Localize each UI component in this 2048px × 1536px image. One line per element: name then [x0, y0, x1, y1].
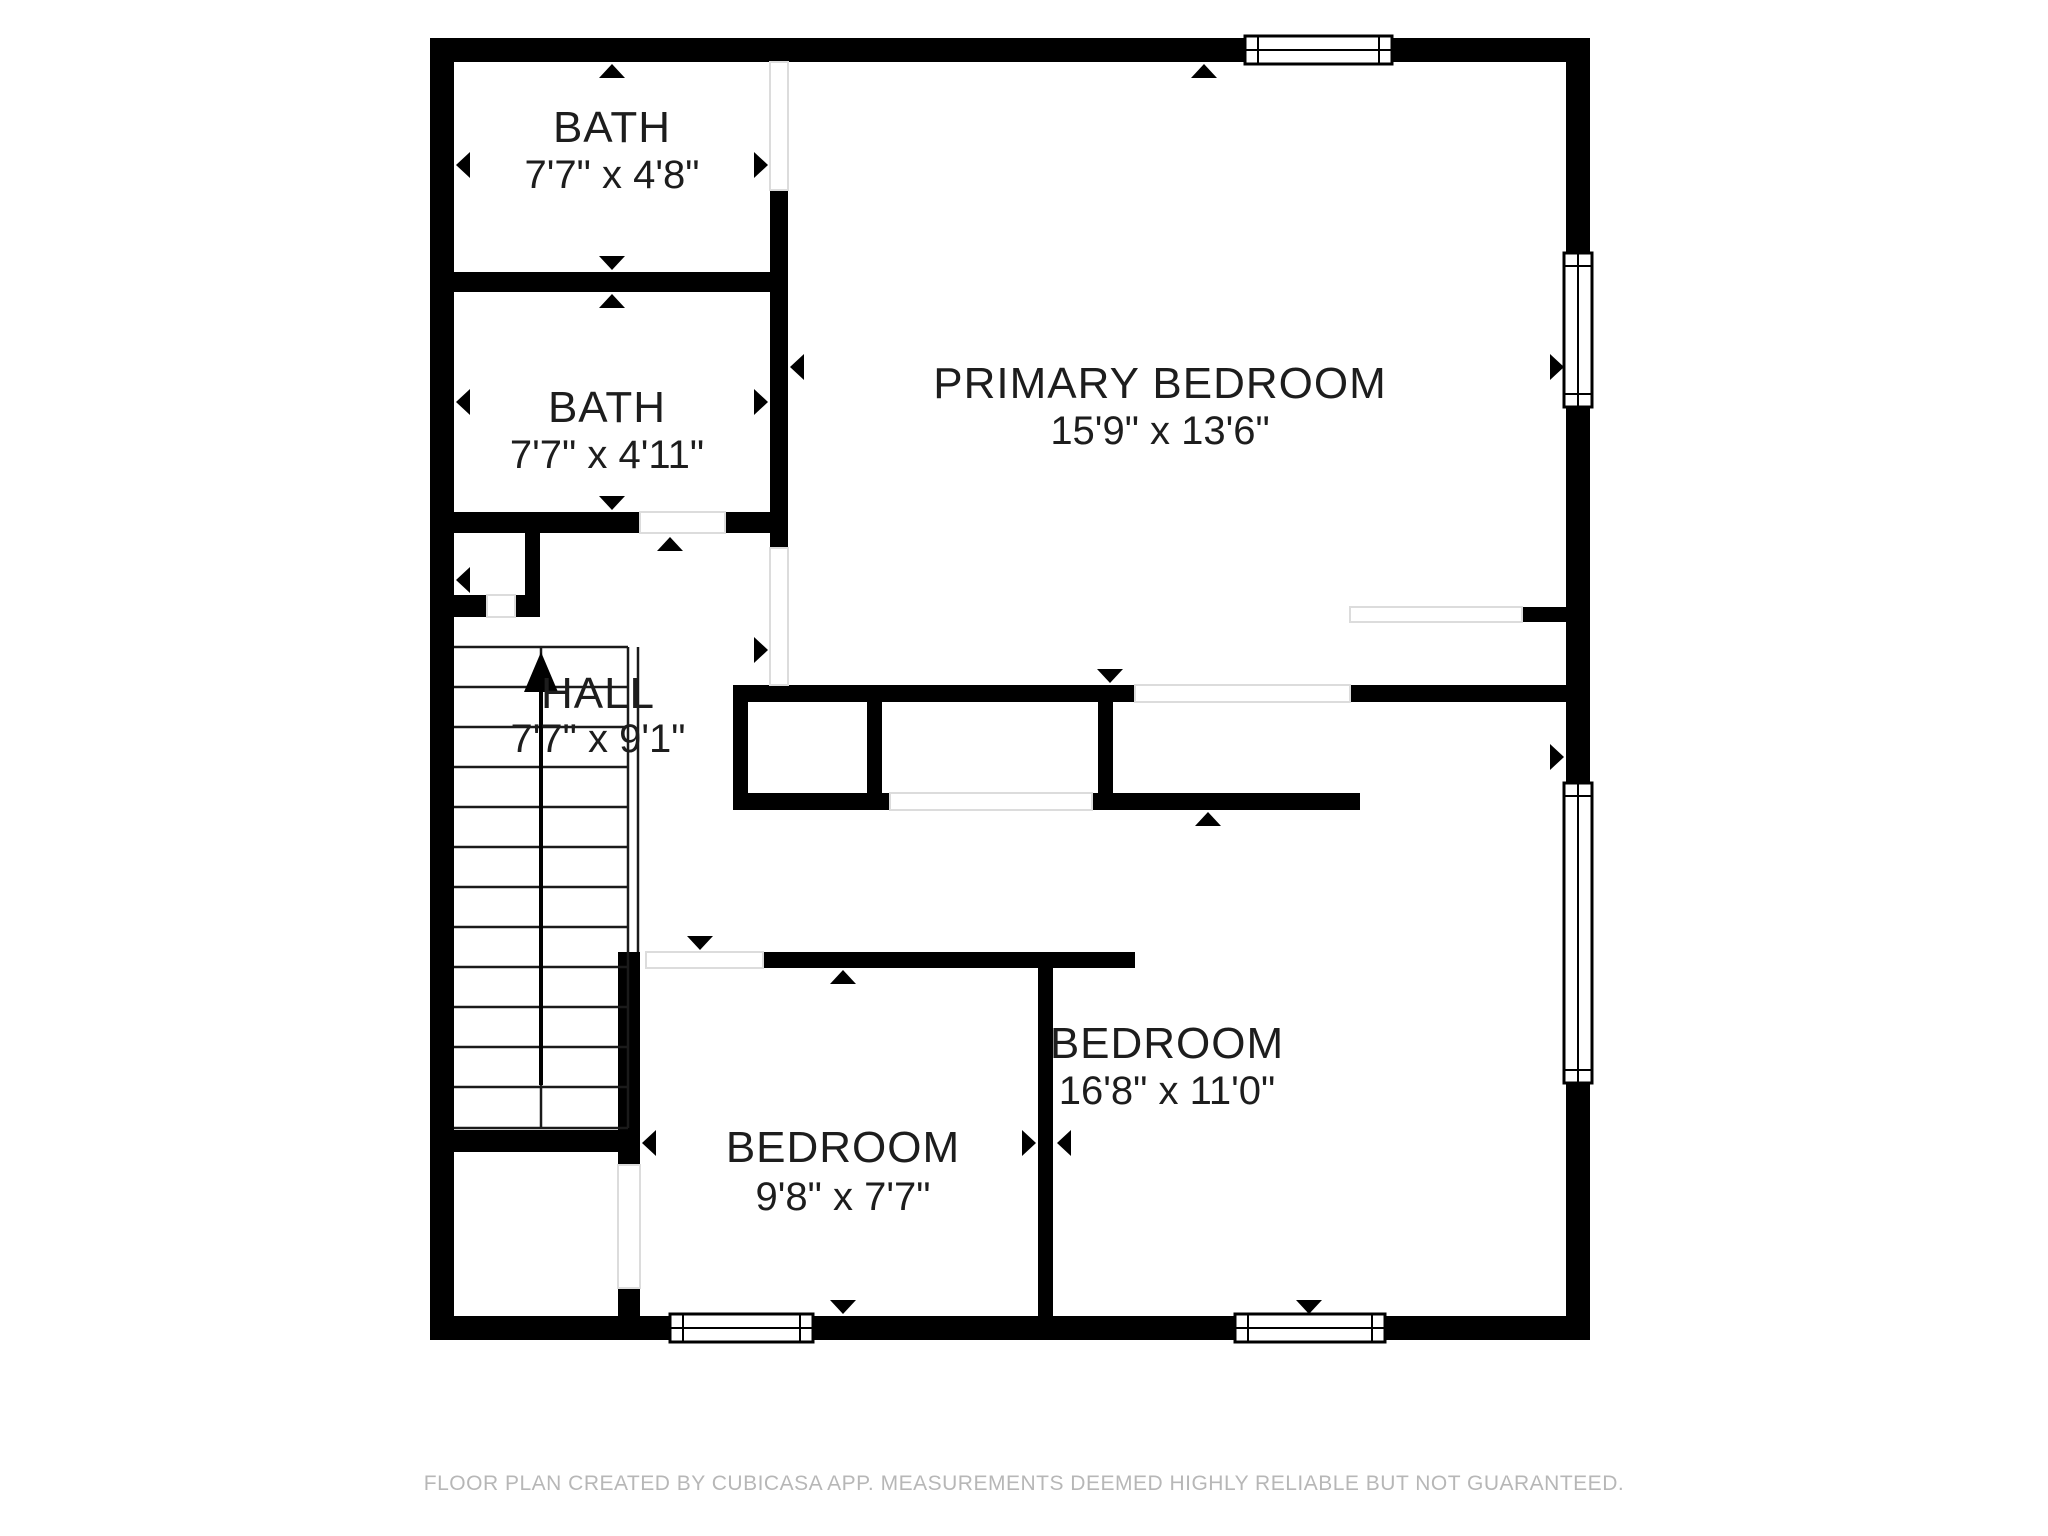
room-dims-bedroom-small: 9'8" x 7'7" [756, 1175, 931, 1219]
page-background [0, 0, 2048, 1536]
wall-closet-bottom-left [733, 793, 890, 810]
wall-hall-closet-lintel-right [515, 595, 540, 617]
wall-bottom [430, 1316, 1590, 1340]
wall-baths-right [770, 190, 788, 548]
room-label-bedroom-large: BEDROOM [1050, 1019, 1284, 1068]
floor-plan-svg: BATH 7'7" x 4'8" BATH 7'7" x 4'11" PRIMA… [0, 0, 2048, 1536]
wall-closet-divider-1 [867, 702, 882, 808]
wall-bath2-bottom-right [725, 512, 770, 533]
wall-closet-divider-2 [1098, 702, 1113, 808]
door-hall-closet [487, 595, 515, 617]
door-under-stair [618, 1165, 640, 1288]
window-top-primary [1245, 36, 1392, 64]
window-right-primary [1564, 253, 1592, 407]
door-primary-bedroom [1135, 685, 1350, 702]
wall-hall-closet-lintel-left [454, 595, 487, 617]
window-right-bedroom-large [1564, 783, 1592, 1083]
wall-closet-left [733, 702, 748, 808]
door-closet-front [890, 793, 1092, 810]
wall-stairs-bottom [454, 1130, 640, 1152]
wall-hall-closet-right [525, 533, 540, 595]
wall-bedroom-small-right [1038, 960, 1053, 1317]
wall-bedroom-small-top [763, 952, 1135, 968]
room-label-bath-middle: BATH [548, 383, 666, 432]
wall-bedroom-small-left-stub [618, 1288, 640, 1317]
door-closet-right [1350, 607, 1522, 622]
window-bottom-bedroom-small [670, 1314, 813, 1342]
wall-top [430, 38, 1590, 62]
door-hall-to-primary [770, 548, 788, 685]
wall-bath-divider [454, 272, 770, 292]
room-dims-hall: 7'7" x 9'1" [511, 717, 686, 761]
room-label-bath-top: BATH [553, 103, 671, 152]
room-label-hall: HALL [541, 669, 655, 718]
wall-bath2-bottom-left [454, 512, 640, 533]
wall-primary-bottom-right [1350, 685, 1566, 702]
door-bath-middle [640, 512, 725, 533]
wall-left [430, 38, 454, 1340]
window-bottom-bedroom-large [1235, 1314, 1385, 1342]
wall-closet-bottom-right [1092, 793, 1360, 810]
room-label-bedroom-small: BEDROOM [726, 1123, 960, 1172]
room-label-primary-bedroom: PRIMARY BEDROOM [933, 359, 1386, 408]
room-dims-bath-top: 7'7" x 4'8" [525, 153, 700, 197]
room-dims-primary-bedroom: 15'9" x 13'6" [1050, 409, 1269, 453]
wall-right [1566, 38, 1590, 1340]
wall-jamb-stub-right [1522, 607, 1566, 622]
room-dims-bath-middle: 7'7" x 4'11" [510, 433, 704, 477]
door-hall-to-bedroom-area [646, 952, 763, 968]
wall-primary-bottom-left [733, 685, 1135, 702]
room-dims-bedroom-large: 16'8" x 11'0" [1059, 1069, 1275, 1113]
door-bath-top [770, 62, 788, 190]
floor-plan-canvas: BATH 7'7" x 4'8" BATH 7'7" x 4'11" PRIMA… [0, 0, 2048, 1536]
footer-disclaimer: FLOOR PLAN CREATED BY CUBICASA APP. MEAS… [424, 1472, 1624, 1495]
